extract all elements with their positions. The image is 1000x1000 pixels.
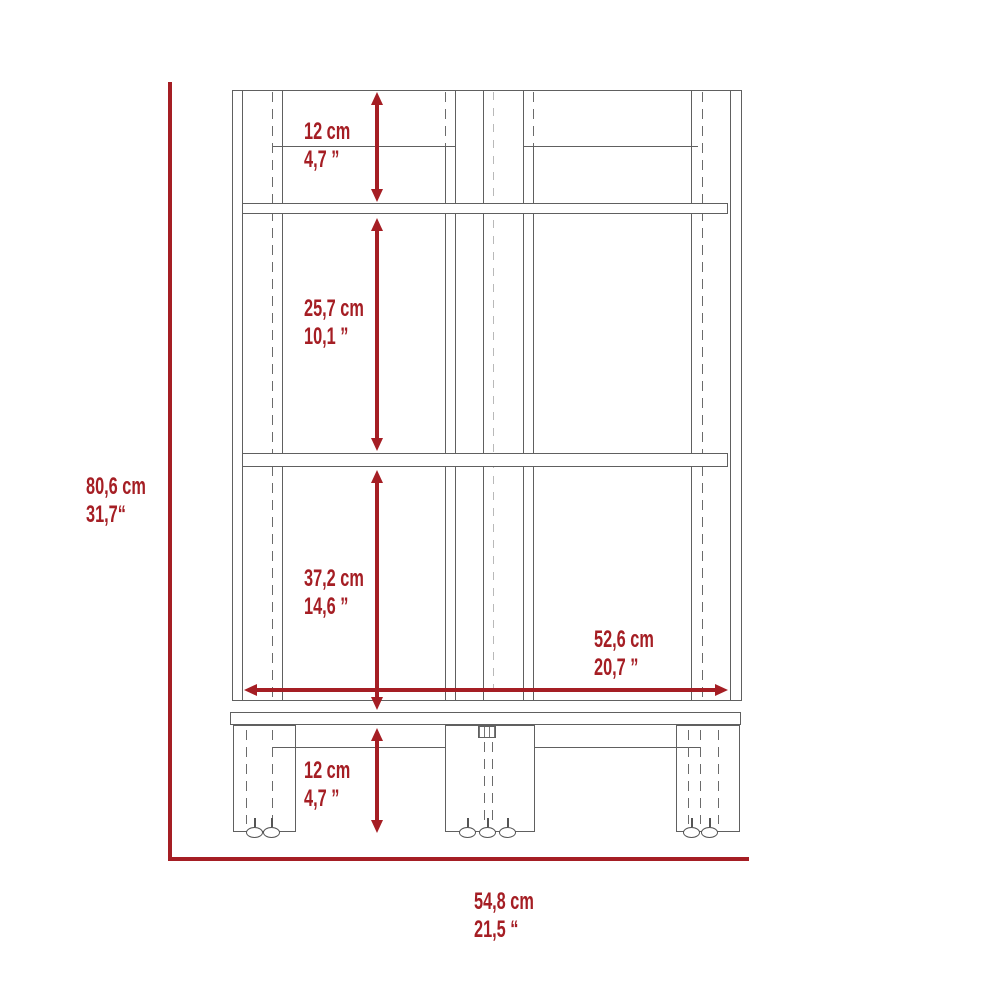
hidden-edge <box>492 742 493 824</box>
leg-height-label: 12 cm 4,7 ” <box>304 757 350 813</box>
center-leg <box>445 725 535 832</box>
furniture-dimension-diagram: 12 cm 4,7 ” 25,7 cm 10,1 ” 37,2 cm 14,6 … <box>0 0 1000 1000</box>
hidden-edge <box>533 92 534 146</box>
middle-shelf <box>242 453 728 467</box>
leveler-foot <box>459 827 476 838</box>
height-datum-line <box>168 82 172 861</box>
dim-inches: 31,7“ <box>86 501 146 529</box>
center-post-edge <box>523 90 524 700</box>
foot-stem <box>691 818 693 827</box>
top-edge-line <box>232 90 742 91</box>
middle-section-label: 25,7 cm 10,1 ” <box>304 295 364 351</box>
hidden-edge <box>445 92 446 146</box>
foot-stem <box>467 818 469 827</box>
hidden-edge <box>718 730 719 824</box>
dim-cm: 12 cm <box>304 757 350 785</box>
foot-stem <box>271 818 273 827</box>
dim-cm: 54,8 cm <box>474 888 534 916</box>
right-outer-edge <box>741 90 742 700</box>
leveler-foot <box>499 827 516 838</box>
leveler-foot <box>263 827 280 838</box>
hidden-edge <box>700 730 701 824</box>
body-bottom-line <box>232 700 742 701</box>
dim-inches: 10,1 ” <box>304 323 364 351</box>
center-leg-bracket <box>478 726 496 738</box>
foot-stem <box>709 818 711 827</box>
left-leg <box>233 725 296 832</box>
leveler-foot <box>683 827 700 838</box>
inner-width-label: 52,6 cm 20,7 ” <box>594 626 654 682</box>
left-outer-edge <box>232 90 233 700</box>
lower-section-label: 37,2 cm 14,6 ” <box>304 565 364 621</box>
dim-inches: 14,6 ” <box>304 593 364 621</box>
right-panel-back-edge <box>691 90 692 700</box>
hidden-edge <box>272 92 273 698</box>
center-post-edge <box>455 90 456 700</box>
hidden-edge <box>702 92 703 698</box>
lower-section-arrow <box>375 483 379 697</box>
leg-height-arrow <box>375 741 379 820</box>
foot-stem <box>487 818 489 827</box>
upper-shelf <box>242 203 728 214</box>
dim-inches: 21,5 “ <box>474 916 534 944</box>
center-post-edge <box>533 146 534 700</box>
hidden-edge <box>688 730 689 824</box>
hidden-edge <box>272 730 273 824</box>
back-rail-line <box>273 146 455 147</box>
center-post-edge <box>483 90 484 700</box>
dim-inches: 20,7 ” <box>594 654 654 682</box>
left-inner-edge <box>242 90 243 700</box>
hidden-edge <box>484 742 485 824</box>
leveler-foot <box>246 827 263 838</box>
left-panel-back-edge <box>282 90 283 700</box>
top-section-label: 12 cm 4,7 ” <box>304 118 350 174</box>
dim-cm: 25,7 cm <box>304 295 364 323</box>
dim-inches: 4,7 ” <box>304 785 350 813</box>
foot-stem <box>507 818 509 827</box>
dim-cm: 80,6 cm <box>86 473 146 501</box>
dim-cm: 12 cm <box>304 118 350 146</box>
leveler-foot <box>701 827 718 838</box>
base-plate <box>230 712 741 725</box>
right-leg <box>676 725 740 832</box>
overall-height-label: 80,6 cm 31,7“ <box>86 473 146 529</box>
overall-width-label: 54,8 cm 21,5 “ <box>474 888 534 944</box>
hidden-edge <box>246 730 247 824</box>
dim-cm: 52,6 cm <box>594 626 654 654</box>
inner-width-arrow <box>257 688 715 692</box>
leveler-foot <box>479 827 496 838</box>
hidden-edge-light <box>493 92 494 698</box>
back-stretcher-line <box>273 747 445 748</box>
right-inner-edge <box>730 90 731 700</box>
foot-stem <box>254 818 256 827</box>
dim-inches: 4,7 ” <box>304 146 350 174</box>
width-datum-line <box>168 857 749 861</box>
back-rail-line <box>523 146 698 147</box>
top-section-arrow <box>375 105 379 189</box>
center-post-edge <box>445 146 446 700</box>
middle-section-arrow <box>375 231 379 438</box>
dim-cm: 37,2 cm <box>304 565 364 593</box>
